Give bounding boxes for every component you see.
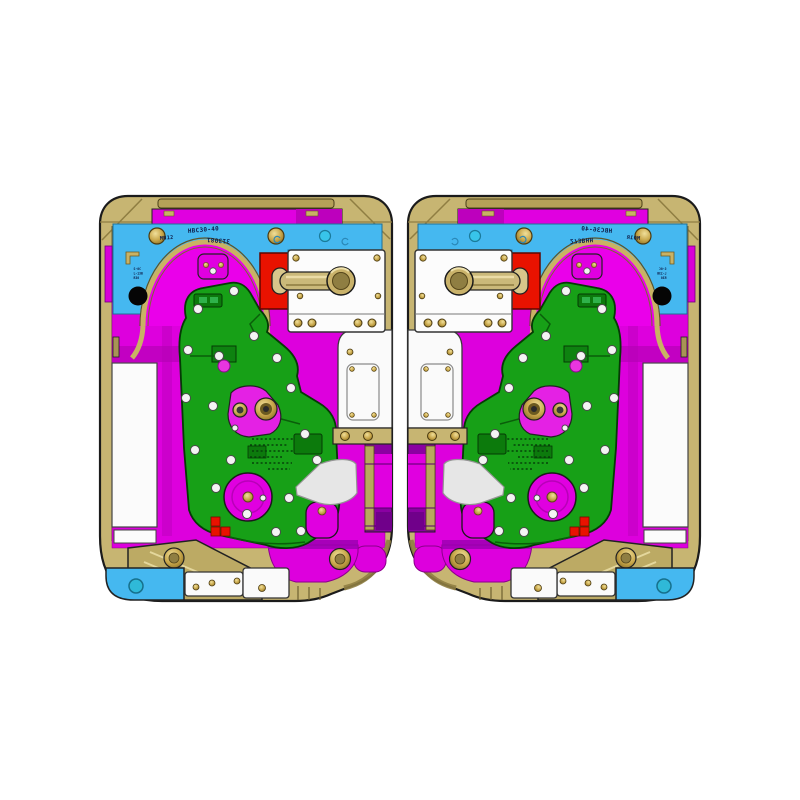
svg-text:R30: R30 [134, 276, 140, 280]
svg-text:R30: R30 [661, 276, 667, 280]
svg-text:L-13B: L-13B [657, 272, 666, 276]
left-engraving-prefix: MN12 [160, 235, 174, 242]
svg-text:S-0C: S-0C [134, 267, 142, 271]
right-engraving-prefix: MO1R [626, 235, 641, 242]
left-mold: MN12 HBC30-40 313081 S-0C L-13B R30 [100, 196, 392, 601]
svg-text:L-13B: L-13B [134, 272, 143, 276]
render-canvas: MN12 HBC30-40 313081 S-0C L-13B R30 MO1R… [0, 0, 800, 800]
right-mold: MO1R HBC36-40 273BHH S-0C L-13B R30 [408, 196, 700, 601]
svg-text:S-0C: S-0C [659, 267, 667, 271]
